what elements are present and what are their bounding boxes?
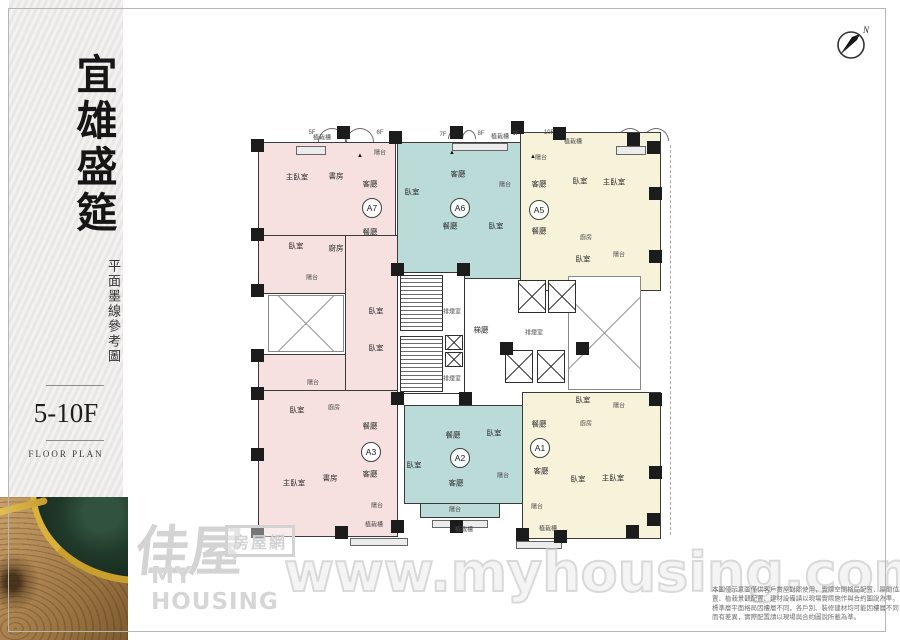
floorplan-page: 宜雄盛筵 平面墨線參考圖 5-10F FLOOR PLAN N ▲▲▲主臥室書房… [0,0,900,640]
unit-badge: A7 [362,198,382,218]
room-label: 臥室 [405,187,420,198]
structural-column [251,139,264,152]
room-label: 餐廳 [532,419,547,430]
unit-badge: A2 [450,448,470,468]
structural-column [649,250,662,263]
room-label: 臥室 [571,474,586,485]
room-label: 9F [512,131,519,137]
room-label: 陽台 [374,148,386,157]
vent-marker: ▲ [357,153,363,159]
structural-column [450,126,463,139]
room-label: 書房 [329,171,344,182]
planter-box [296,146,326,155]
disclaimer-line: 而有差異，實際配置請以現場與合約圖說所載為準。 [712,614,879,623]
room-label: 廚房 [580,419,592,428]
room-label: 陽台 [306,273,318,282]
duct-shaft [445,335,463,350]
myhousing-logo-watermark: 佳屋 房屋網 MY HOUSING [133,505,303,600]
unit-badge: A6 [450,198,470,218]
room-label: 5F [308,130,315,136]
disclaimer-text: 本圖僅示意圖僅供客戶賞屋對照使用，實際空間格局配置、隔間位 置、植栽景觀配置、建… [712,586,879,623]
room-label: 植栽槽 [491,132,509,141]
room-label: 主臥室 [602,473,625,484]
room-label: 臥室 [489,221,504,232]
room-label: 植栽槽 [539,524,557,533]
room-label: 排煙室 [443,374,461,383]
structural-column [251,387,264,400]
room-label: 客廳 [534,466,549,477]
structural-column [649,187,662,200]
lightwell-x [568,276,641,390]
structural-column [647,513,660,526]
room-label: 廚房 [328,403,340,412]
room-label: 陽台 [371,501,383,510]
compass-n-label: N [862,25,870,35]
room-label: 客廳 [363,469,378,480]
room-label: 廚房 [580,233,592,242]
structural-column [391,392,404,405]
balcony-arc [346,128,374,142]
room-label: 臥室 [576,395,591,406]
room-label: 排煙室 [525,328,543,337]
floor-range-label: 5-10F [9,398,123,429]
room-label: 餐廳 [532,226,547,237]
unit-badge: A5 [529,200,549,220]
room-label: 陽台 [613,401,625,410]
room-label: 臥室 [369,306,384,317]
room-label: 7F [439,132,446,138]
structural-column [647,141,660,154]
stairwell [400,275,443,331]
room-label: 書房 [323,473,338,484]
structural-column [649,466,662,479]
room-label: 陽台 [535,153,547,162]
structural-column [251,284,264,297]
elevator-shaft [518,280,546,313]
room-label: 餐廳 [363,227,378,238]
room-label: 餐廳 [443,221,458,232]
structural-column [391,520,404,533]
room-label: 客廳 [532,179,547,190]
structural-column [391,263,404,276]
unit-badge: A1 [530,438,550,458]
divider-rule-bottom [46,440,104,441]
logo-en-text: MY HOUSING [151,563,303,615]
room-label: 植栽槽 [365,520,383,529]
structural-column [389,131,402,144]
disclaimer-line: 置、植栽景觀配置、建材設備請以現場實際施作與合約圖說為準。 [712,595,879,604]
wood-slab-artwork [0,497,128,640]
room-label: 陽台 [499,180,511,189]
lightwell-x [268,295,344,352]
structural-column [251,349,264,362]
room-label: 餐廳 [446,430,461,441]
room-label: 臥室 [407,460,422,471]
north-compass-icon: N [830,22,878,64]
room-label: 陽台 [497,471,509,480]
room-label: 植栽槽 [564,137,582,146]
room-label: 排煙室 [443,307,461,316]
room-label: 客廳 [451,169,466,180]
structural-column [337,126,350,139]
room-label: 主臥室 [286,172,309,183]
structural-column [251,228,264,241]
room-label: 10F [544,130,554,136]
balcony-arc [462,130,476,139]
structural-column [627,133,640,146]
stairwell [400,336,443,392]
room-label: 陽台 [531,502,543,511]
structural-column [626,525,639,538]
room-label: 臥室 [290,405,305,416]
room-label: 梯廳 [474,325,489,336]
structural-column [576,342,589,355]
structural-column [649,393,662,406]
structural-column [335,526,348,539]
room-label: 陽台 [449,505,461,514]
room-label: 植栽槽 [455,525,473,534]
room-label: 臥室 [576,254,591,265]
room-label: 廚房 [329,243,344,254]
disclaimer-line: 本圖僅示意圖僅供客戶賞屋對照使用，實際空間格局配置、隔間位 [712,586,879,595]
unit-badge: A3 [361,442,381,462]
elevator-shaft [548,280,576,313]
room-label: 主臥室 [603,177,626,188]
vent-marker: ▲ [449,150,455,156]
unit-region-pink [258,354,346,391]
room-label: 植栽槽 [313,133,331,142]
planter-box [616,146,646,155]
room-label: 陽台 [613,250,625,259]
structural-column [516,528,529,541]
structural-column [457,263,470,276]
plan-subtitle-vertical: 平面墨線參考圖 [9,256,123,366]
floor-plan-caption: FLOOR PLAN [9,449,123,459]
project-title-calligraphy: 宜雄盛筵 [9,50,123,240]
divider-rule-top [46,385,104,386]
room-label: 客廳 [363,179,378,190]
room-label: 臥室 [573,176,588,187]
logo-zh-box: 房屋網 [225,525,295,557]
room-label: 主臥室 [283,478,306,489]
duct-shaft [445,352,463,367]
room-label: 臥室 [369,343,384,354]
room-label: 6F [376,130,383,136]
disclaimer-line: 標準層平面格局因樓層不同，各戶別、裝修建材均可能因樓層不同 [712,604,879,613]
structural-column [459,392,472,405]
planter-box [452,143,508,151]
room-label: 客廳 [449,478,464,489]
room-label: 陽台 [307,378,319,387]
structural-column [251,448,264,461]
elevator-shaft [537,350,565,383]
room-label: 8F [477,131,484,137]
room-label: 臥室 [487,428,502,439]
room-label: 餐廳 [363,421,378,432]
structural-column [500,342,513,355]
room-label: 臥室 [289,241,304,252]
